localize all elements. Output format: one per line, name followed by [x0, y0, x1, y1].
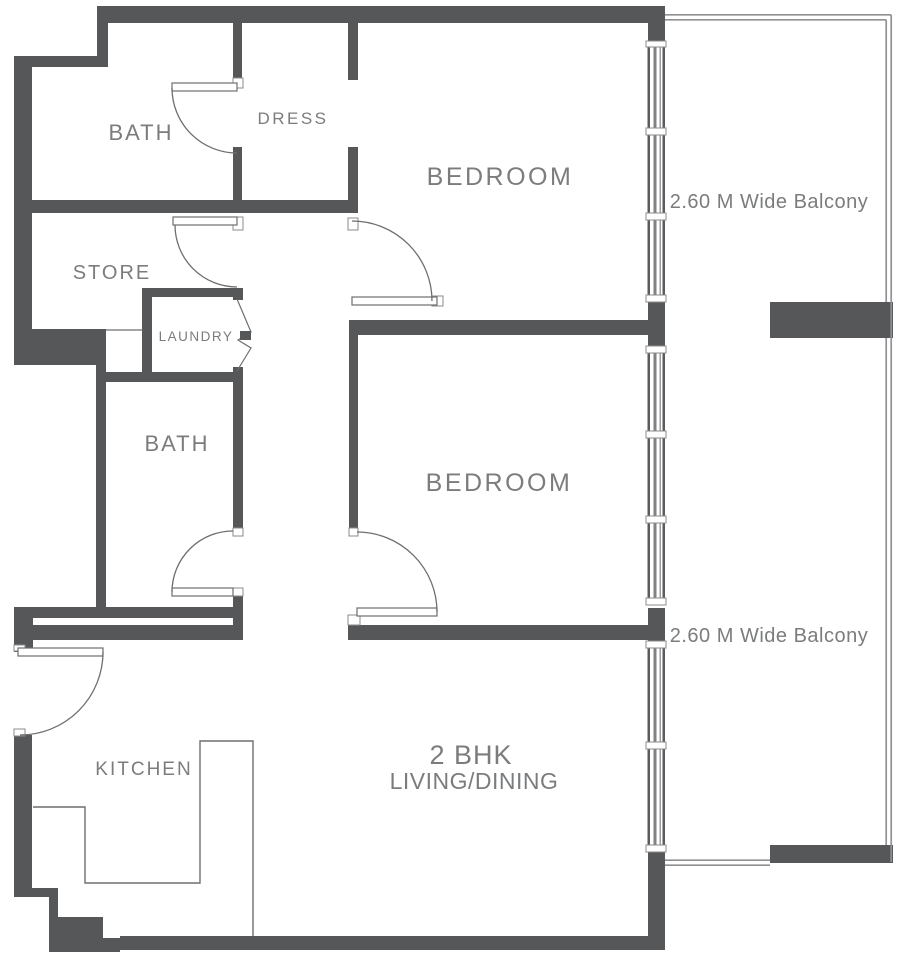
window-pane-line	[648, 438, 651, 516]
window-sill	[646, 598, 666, 605]
window-pane-line	[663, 523, 666, 599]
window-pane-line	[648, 647, 651, 742]
wall-segment	[33, 625, 237, 640]
room-label-bath-2: BATH	[144, 431, 209, 456]
unit-type-label: 2 BHK	[429, 740, 512, 770]
wall-segment	[648, 852, 665, 950]
wall-segment	[120, 936, 665, 950]
window-pane-line	[663, 438, 666, 516]
door-swing-arc	[20, 652, 103, 735]
wall-segment	[14, 607, 237, 618]
room-label-bedroom-2: BEDROOM	[426, 469, 573, 497]
wall-segment	[349, 320, 648, 335]
wall-segment	[49, 938, 120, 952]
window-sill	[646, 128, 666, 135]
window-sill	[646, 431, 666, 438]
window-pane-line	[648, 134, 651, 213]
room-label-laundry: LAUNDRY	[159, 329, 234, 344]
door-leaf	[352, 297, 437, 305]
door-leaf	[172, 83, 237, 91]
wall-segment	[142, 288, 243, 297]
window-pane-line	[660, 134, 662, 213]
window-pane-line	[654, 134, 657, 213]
window-pane-line	[663, 46, 666, 128]
door-swing-arc	[172, 531, 233, 592]
window-pane-line	[648, 749, 651, 846]
wall-segment	[348, 147, 358, 200]
wall-segment	[14, 735, 32, 897]
window-sill	[646, 742, 666, 749]
wall-segment	[142, 288, 152, 382]
window-pane-line	[648, 523, 651, 599]
window-pane-line	[654, 647, 657, 742]
door-swing-arc	[352, 221, 432, 301]
wall-segment	[349, 335, 358, 528]
window-pane-line	[660, 523, 662, 599]
window-pane-line	[648, 219, 651, 296]
room-label-kitchen: KITCHEN	[95, 759, 192, 780]
door-swing-arc	[357, 532, 437, 612]
wall-segment	[96, 365, 106, 607]
window-sill	[646, 516, 666, 523]
window-pane-line	[648, 352, 651, 431]
door-jamb	[349, 528, 358, 536]
room-label-bath-1: BATH	[108, 120, 173, 145]
window-sill	[646, 41, 666, 47]
window-pane-line	[654, 219, 657, 296]
wall-segment	[14, 56, 32, 336]
wall-segment	[348, 625, 648, 640]
window-pane-line	[654, 749, 657, 846]
door-jamb	[233, 528, 243, 536]
balcony-end-wall	[770, 845, 893, 863]
bifold-door-handle	[240, 331, 251, 340]
wall-segment	[648, 302, 665, 347]
door-jamb	[348, 218, 358, 230]
window-pane-line	[660, 46, 662, 128]
window-pane-line	[654, 438, 657, 516]
wall-segment	[233, 595, 243, 640]
windows	[646, 41, 666, 852]
wall-segment	[648, 608, 665, 642]
door-swing-arc	[175, 225, 237, 287]
wall-segment	[58, 917, 103, 940]
door-leaf	[18, 648, 103, 656]
wall-segment	[14, 329, 106, 365]
room-label-store: STORE	[73, 262, 152, 284]
window-pane-line	[663, 352, 666, 431]
balcony-parapets	[665, 15, 891, 865]
room-label-dress: DRESS	[257, 109, 328, 128]
door-leaf	[357, 608, 437, 616]
door-swing-arc	[172, 88, 237, 153]
wall-segment	[233, 382, 243, 528]
wall-segment	[32, 200, 358, 213]
window-sill	[646, 213, 666, 220]
window-pane-line	[663, 647, 666, 742]
window-pane-line	[663, 749, 666, 846]
window-pane-line	[660, 438, 662, 516]
balcony-divider-wall	[770, 302, 893, 338]
door-jamb	[233, 588, 243, 596]
room-label-bedroom-1: BEDROOM	[427, 163, 574, 191]
wall-segment	[14, 888, 49, 897]
window-pane-line	[663, 219, 666, 296]
window-sill	[646, 295, 666, 302]
window-pane-line	[660, 219, 662, 296]
floor-plan: BATH DRESS BEDROOM 2.60 M Wide Balcony S…	[0, 0, 906, 960]
room-label-balcony-2: 2.60 M Wide Balcony	[670, 625, 868, 647]
wall-segment	[96, 372, 243, 382]
window-pane-line	[660, 749, 662, 846]
room-label-living-dining: LIVING/DINING	[390, 768, 559, 794]
window-pane-line	[660, 352, 662, 431]
window-sill	[646, 641, 666, 648]
window-pane-line	[654, 523, 657, 599]
room-label-balcony-1: 2.60 M Wide Balcony	[670, 191, 868, 213]
door-leaf	[172, 588, 233, 596]
window-pane-line	[654, 352, 657, 431]
wall-segment	[348, 23, 358, 80]
wall-segment	[97, 6, 665, 23]
window-pane-line	[654, 46, 657, 128]
window-pane-line	[663, 134, 666, 213]
wall-segment	[233, 288, 243, 300]
window-pane-line	[660, 647, 662, 742]
window-sill	[646, 346, 666, 353]
wall-segment	[648, 23, 665, 42]
wall-segment	[233, 23, 242, 78]
window-pane-line	[648, 46, 651, 128]
wall-segment	[233, 147, 242, 200]
window-sill	[646, 845, 666, 852]
door-leaf	[173, 217, 237, 225]
